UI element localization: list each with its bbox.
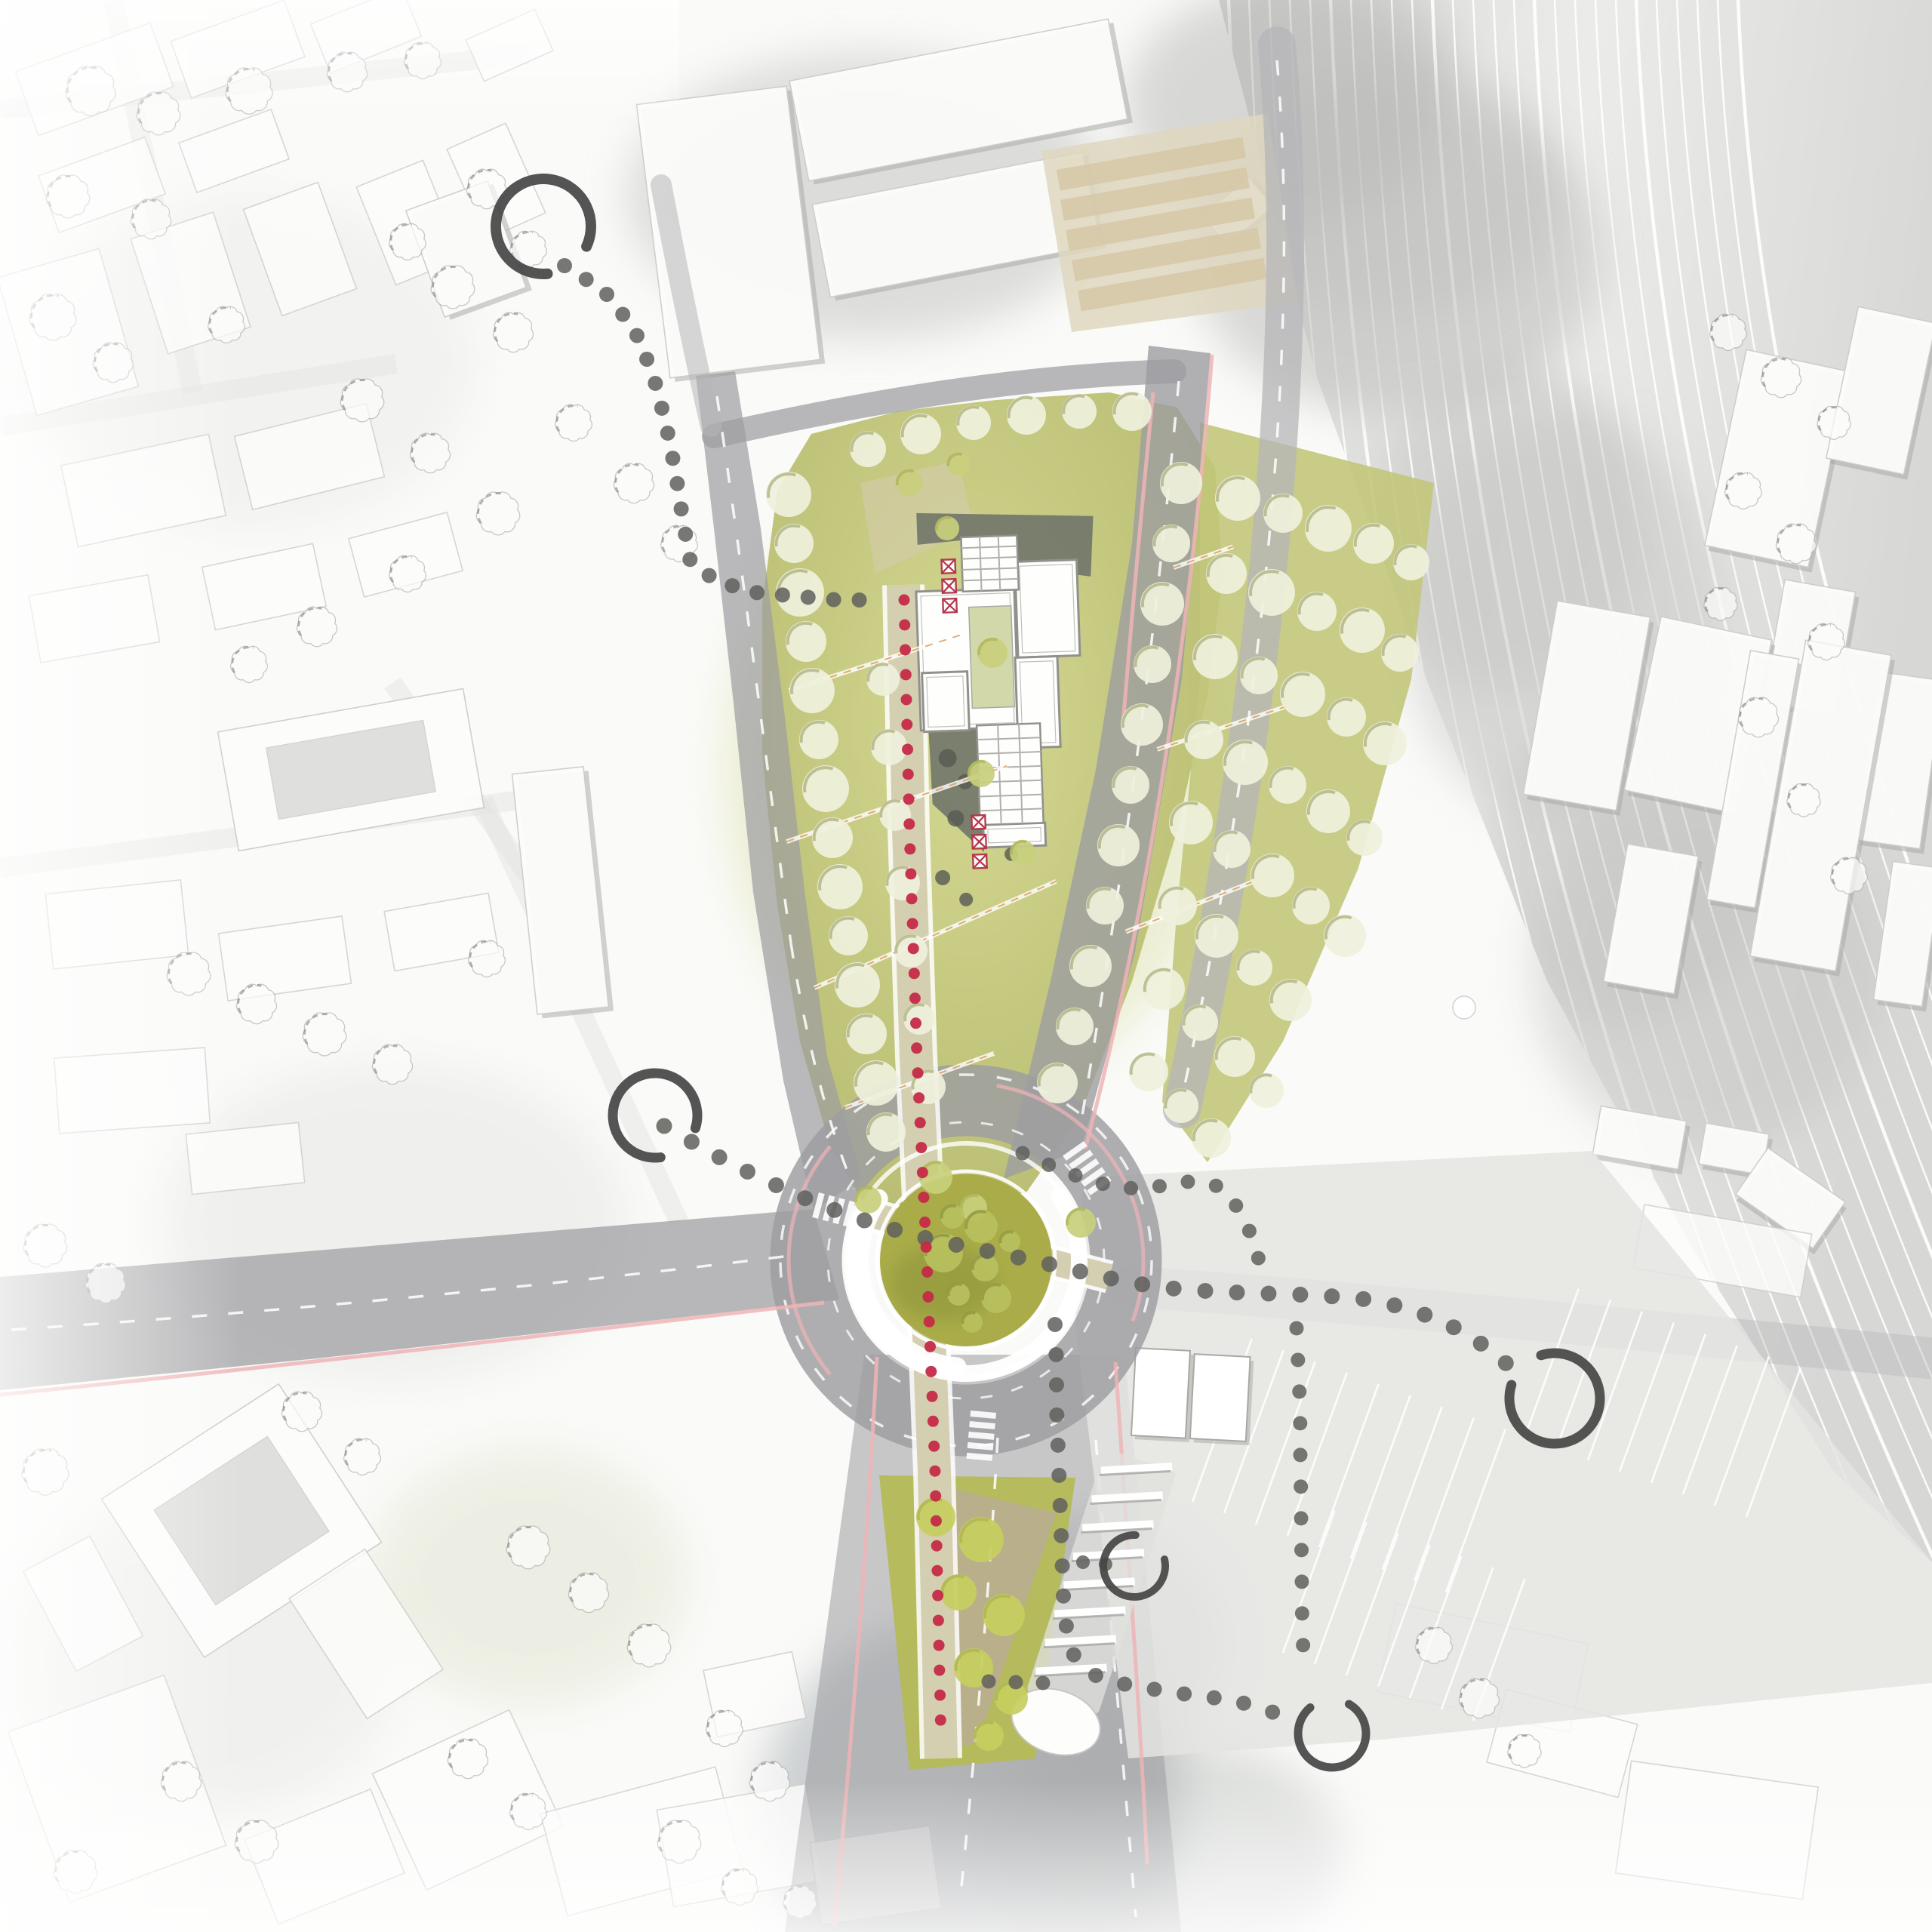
site-tree: [1143, 968, 1185, 1010]
campus-building: [922, 672, 970, 732]
site-tree: [1140, 582, 1184, 626]
site-plan-map: [0, 0, 1932, 1932]
corridor-white-dot: [1453, 996, 1475, 1019]
site-tree: [1215, 475, 1260, 521]
site-tree: [1069, 945, 1112, 987]
edge-fade-left: [0, 0, 241, 1932]
context-tree: [303, 1013, 346, 1056]
site-tree: [1169, 801, 1213, 844]
site-plan: [0, 0, 1932, 1932]
site-tree: [1086, 887, 1124, 924]
site-tree: [1297, 592, 1337, 631]
site-tree: [1305, 505, 1352, 552]
site-tree: [1251, 854, 1294, 897]
fire-access-marker: [973, 854, 987, 869]
site-tree: [1240, 657, 1278, 694]
skylight-grid-hall: [961, 535, 1018, 592]
site-tree: [1152, 525, 1190, 562]
site-tree: [1121, 703, 1163, 746]
context-tree: [506, 1526, 549, 1569]
site-tree: [802, 765, 849, 812]
fire-access-marker: [972, 835, 986, 849]
site-tree: [1306, 789, 1350, 833]
site-tree: [835, 962, 880, 1008]
context-tree: [340, 379, 383, 422]
path-bridge-spur: [982, 1675, 1051, 1690]
site-tree: [1184, 720, 1223, 759]
site-tree: [1062, 394, 1097, 429]
site-tree: [1158, 886, 1197, 925]
site-tree: [850, 431, 886, 467]
site-tree: [1381, 634, 1419, 672]
context-tree: [476, 492, 519, 535]
edge-fade-bottom: [0, 1781, 1932, 1932]
site-tree: [789, 668, 835, 713]
station-building: [1190, 1354, 1251, 1441]
site-tree: [1129, 1052, 1168, 1091]
site-tree: [854, 1060, 899, 1106]
context-tree: [627, 1624, 670, 1667]
site-tree: [1112, 392, 1152, 431]
site-tree: [983, 1594, 1025, 1636]
fire-access-marker: [942, 579, 956, 593]
site-tree: [1269, 979, 1312, 1021]
site-tree: [940, 1574, 977, 1611]
site-tree: [871, 729, 907, 765]
station-building: [1131, 1348, 1190, 1438]
site-tree: [1097, 824, 1140, 866]
site-tree: [900, 414, 941, 454]
context-tree: [431, 266, 474, 309]
site-tree: [1248, 569, 1295, 616]
site-tree: [1269, 766, 1306, 804]
site-tree: [786, 621, 826, 662]
site-tree: [1292, 887, 1330, 924]
site-tree: [1134, 645, 1171, 683]
site-tree: [812, 817, 853, 858]
site-tree: [766, 472, 811, 517]
site-tree: [1346, 820, 1383, 856]
site-tree: [1236, 949, 1272, 986]
campus-building: [1015, 560, 1080, 658]
site-tree: [1192, 1118, 1231, 1158]
site-tree: [1327, 697, 1366, 737]
site-tree: [1324, 915, 1366, 957]
site-tree: [829, 916, 868, 955]
parking-yard-layer: [1041, 113, 1298, 332]
site-tree: [817, 864, 863, 909]
site-tree: [846, 1014, 887, 1054]
site-tree: [1393, 544, 1429, 580]
site-tree: [1214, 1036, 1255, 1077]
site-tree: [1037, 1063, 1078, 1103]
site-tree: [1192, 634, 1238, 679]
site-tree: [1160, 462, 1202, 504]
site-tree: [1112, 766, 1149, 804]
site-tree: [956, 405, 991, 440]
site-tree: [799, 720, 838, 759]
fire-access-marker: [943, 598, 957, 613]
site-tree: [1206, 553, 1247, 594]
site-tree: [1249, 1073, 1284, 1108]
edge-fade-top: [0, 0, 679, 128]
site-tree: [1263, 494, 1303, 533]
site-tree: [1213, 830, 1251, 868]
site-tree: [866, 1112, 906, 1152]
site-tree: [1007, 395, 1046, 435]
site-tree: [774, 524, 814, 563]
site-tree: [958, 1517, 1004, 1562]
site-tree: [1223, 740, 1268, 785]
site-tree: [1056, 1008, 1094, 1045]
site-tree: [1340, 608, 1385, 653]
site-tree: [1164, 1088, 1198, 1123]
site-tree: [1363, 721, 1407, 765]
fire-access-marker: [971, 815, 986, 829]
fire-access-marker: [941, 559, 955, 574]
site-tree: [1280, 672, 1325, 717]
site-tree: [1353, 523, 1394, 564]
site-tree: [1195, 914, 1238, 958]
site-tree: [1182, 1004, 1218, 1041]
